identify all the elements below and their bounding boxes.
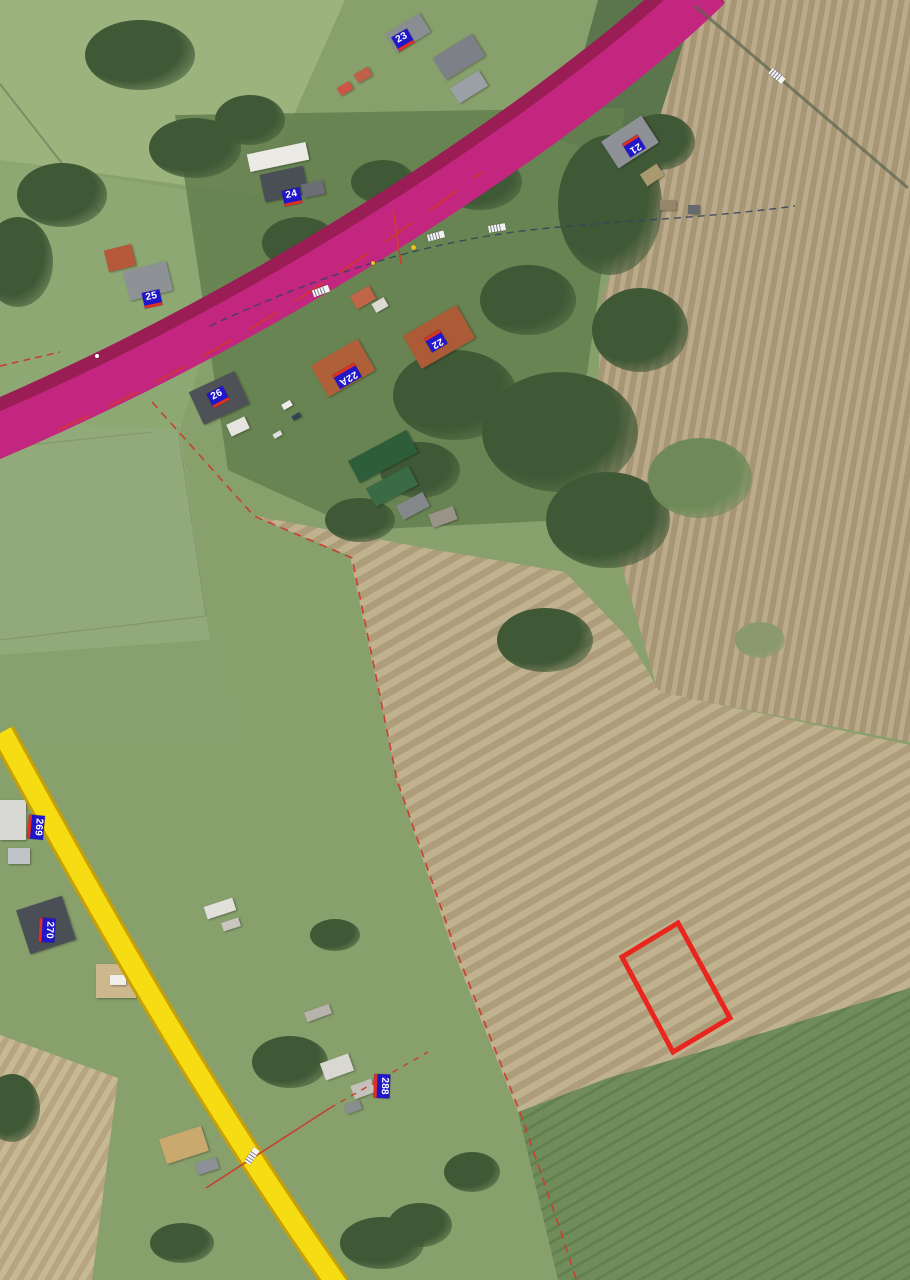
- aerial-map-canvas[interactable]: 232425212222A26269270288: [0, 0, 910, 1280]
- building-roof: [348, 430, 418, 483]
- survey-point-marker: [371, 261, 375, 265]
- tree-cluster: [625, 114, 695, 170]
- house-number-label[interactable]: 269: [27, 815, 45, 840]
- building-roof: [403, 305, 476, 369]
- road-reference-label: [768, 68, 786, 84]
- building-roof: [16, 896, 76, 955]
- highlighted-parcel-outline[interactable]: [622, 923, 730, 1052]
- building-roof: [601, 116, 659, 169]
- tree-cluster: [388, 1203, 452, 1247]
- fence-line: [178, 428, 206, 616]
- building-roof: [260, 166, 309, 203]
- house-number-label[interactable]: 288: [374, 1074, 391, 1098]
- road-reference-label: [488, 223, 506, 233]
- survey-point-marker: [411, 245, 416, 250]
- building-roof: [354, 67, 373, 84]
- house-number-label[interactable]: 22A: [332, 363, 362, 389]
- tree-cluster: [482, 372, 638, 492]
- building-roof: [433, 34, 486, 80]
- building-roof: [304, 1004, 332, 1022]
- parcel-boundary-segment: [206, 1108, 330, 1188]
- fence-line: [0, 432, 152, 448]
- building-roof: [660, 200, 676, 210]
- building-roof: [337, 81, 354, 96]
- fields-layer: [0, 0, 910, 1280]
- building-roof: [204, 898, 237, 920]
- parcel-boundary-left: [0, 352, 60, 366]
- building-roof: [159, 1126, 209, 1164]
- building-roof: [688, 205, 700, 214]
- tree-cluster: [310, 919, 360, 951]
- tree-cluster: [351, 160, 415, 204]
- tree-cluster: [592, 288, 688, 372]
- house-number-label[interactable]: 21: [622, 135, 646, 158]
- building-roof: [344, 1100, 362, 1115]
- tree-cluster: [252, 1036, 328, 1088]
- field-patch: [0, 0, 910, 1280]
- building-roof: [350, 1079, 375, 1100]
- tree-cluster: [546, 472, 670, 568]
- tree-cluster: [0, 217, 53, 307]
- building-roof: [320, 1053, 354, 1080]
- building-roof: [366, 466, 418, 507]
- tree-cluster: [393, 350, 517, 440]
- building-roof: [291, 412, 301, 421]
- field-patch: [0, 0, 910, 1280]
- building-roof: [428, 506, 457, 528]
- building-roof: [189, 371, 250, 425]
- house-number-label[interactable]: 25: [142, 289, 163, 308]
- tree-cluster: [480, 265, 576, 335]
- vegetation-layer: [0, 0, 910, 1280]
- building-roof: [311, 339, 376, 397]
- tree-cluster: [380, 442, 460, 498]
- building-roof: [8, 848, 30, 864]
- building-roof: [371, 297, 388, 313]
- house-number-label[interactable]: 24: [282, 187, 303, 206]
- building-roof: [247, 142, 309, 172]
- utility-dashed-line: [210, 206, 795, 326]
- house-number-label[interactable]: 26: [206, 386, 229, 408]
- parcel-boundary-dashed: [152, 402, 578, 1280]
- side-road-highlight: [2, 732, 338, 1280]
- tree-row-line: [0, 84, 100, 212]
- field-patch: [0, 0, 910, 1280]
- house-number-label[interactable]: 22: [424, 330, 447, 353]
- building-roof: [110, 975, 126, 985]
- field-patch: [0, 0, 910, 1280]
- building-roof: [385, 13, 431, 53]
- building-roof: [281, 400, 293, 410]
- parcel-boundary-segment-dashed: [330, 1052, 428, 1108]
- building-roof: [226, 416, 250, 436]
- tree-cluster: [215, 95, 285, 145]
- tree-cluster: [325, 498, 395, 542]
- buildings-layer: [0, 0, 910, 1280]
- cadastral-overlay: [0, 0, 910, 1280]
- field-patch: [0, 0, 910, 1280]
- building-roof: [450, 70, 488, 103]
- tree-cluster: [340, 1217, 424, 1269]
- field-patch: [0, 0, 910, 1280]
- tree-cluster: [85, 20, 195, 90]
- tree-cluster: [438, 154, 522, 210]
- house-number-label[interactable]: 270: [38, 918, 55, 942]
- main-road-highlight: [0, 0, 709, 442]
- building-roof: [350, 286, 377, 310]
- building-roof: [195, 1157, 220, 1175]
- main-road-casing: [0, 0, 705, 436]
- field-patch: [0, 0, 910, 1280]
- building-roof: [640, 164, 664, 187]
- tree-cluster: [735, 622, 785, 658]
- tree-cluster: [0, 1074, 40, 1142]
- tree-cluster: [262, 217, 338, 269]
- building-roof: [272, 430, 282, 439]
- road-reference-label: [312, 285, 330, 297]
- tree-cluster: [648, 438, 752, 518]
- road-reference-label: [244, 1147, 259, 1165]
- tree-cluster: [149, 118, 241, 178]
- field-patch: [0, 0, 910, 1280]
- side-road-casing: [2, 732, 338, 1280]
- main-road-edge-red: [58, 172, 482, 430]
- building-roof: [0, 800, 26, 840]
- survey-point-marker: [95, 354, 99, 358]
- tree-cluster: [558, 135, 662, 275]
- road-reference-label: [427, 230, 445, 241]
- field-patch: [0, 0, 910, 1280]
- fence-line: [0, 616, 206, 640]
- building-roof: [396, 492, 430, 520]
- labels-layer: 232425212222A26269270288: [0, 0, 910, 1280]
- tree-cluster: [444, 1152, 500, 1192]
- tree-cluster: [150, 1223, 214, 1263]
- tree-cluster: [497, 608, 593, 672]
- field-patch: [0, 0, 910, 1280]
- house-number-label[interactable]: 23: [391, 29, 414, 52]
- building-roof: [301, 180, 325, 198]
- building-roof: [123, 261, 173, 301]
- field-track-line: [695, 6, 908, 188]
- parcel-boundary-short: [393, 210, 401, 264]
- building-roof: [104, 244, 136, 272]
- building-roof: [96, 964, 136, 998]
- building-roof: [221, 917, 241, 931]
- tree-cluster: [17, 163, 107, 227]
